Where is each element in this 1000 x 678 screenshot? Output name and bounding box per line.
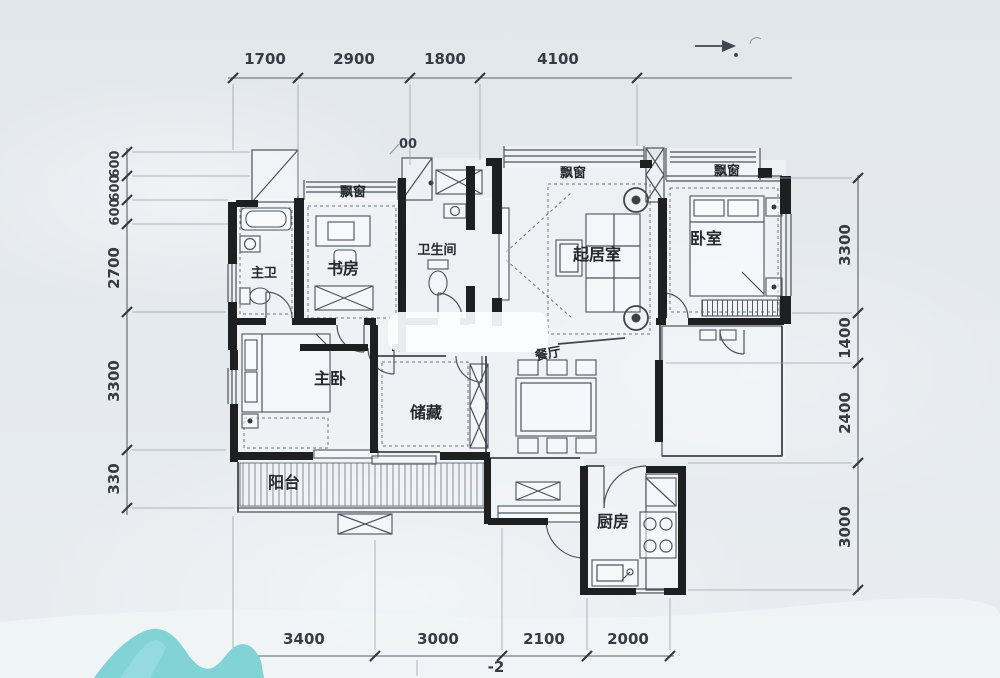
floor-plan-canvas: 1700 2900 1800 4100 3400 3000 2100 2000	[0, 0, 1000, 678]
room-label-storage: 储藏	[409, 403, 442, 422]
dim-top-1: 1700	[244, 50, 286, 68]
dim-bottom-4: 2000	[607, 630, 649, 648]
stray-dimension-fragment: 00	[399, 137, 417, 152]
dim-top-3: 1800	[424, 50, 466, 68]
dim-left-4: 2700	[105, 247, 123, 289]
room-label-master-bedroom: 主卧	[314, 369, 346, 388]
dim-left-3: 600	[108, 198, 123, 225]
dim-bottom-3: 2100	[523, 630, 565, 648]
dim-left-6: 330	[105, 463, 123, 494]
dim-right-1: 3300	[836, 224, 854, 266]
room-label-study: 书房	[327, 259, 359, 278]
room-label-bathroom: 卫生间	[417, 242, 456, 258]
dim-top-4: 4100	[537, 50, 579, 68]
room-label-bedroom: 卧室	[690, 229, 722, 248]
bay-window-label-living: 飘窗	[560, 165, 586, 181]
dim-left-1: 600	[108, 150, 123, 177]
dim-right-4: 3000	[836, 506, 854, 548]
room-label-living: 起居室	[572, 245, 621, 264]
dim-left-2: 600	[108, 174, 123, 201]
room-label-master-bath: 主卫	[251, 265, 277, 281]
dim-bottom-1: 3400	[283, 630, 325, 648]
dim-bottom-2: 3000	[417, 630, 459, 648]
dim-right-3: 2400	[836, 392, 854, 434]
bay-window-label-bedroom: 飘窗	[714, 163, 740, 179]
white-patch	[388, 312, 548, 352]
dim-left-5: 3300	[105, 360, 123, 402]
room-label-kitchen: 厨房	[597, 512, 629, 531]
floor-plan-page: { "title": "apartment-floor-plan", "colo…	[0, 0, 1000, 678]
utility-platform	[338, 514, 392, 534]
stray-arrow-mark	[695, 38, 761, 57]
stray-mark-minus2: -2	[488, 658, 505, 676]
room-label-balcony: 阳台	[268, 473, 300, 492]
bay-window-label-study: 飘窗	[340, 184, 366, 200]
dim-top-2: 2900	[333, 50, 375, 68]
dim-right-2: 1400	[836, 317, 854, 359]
